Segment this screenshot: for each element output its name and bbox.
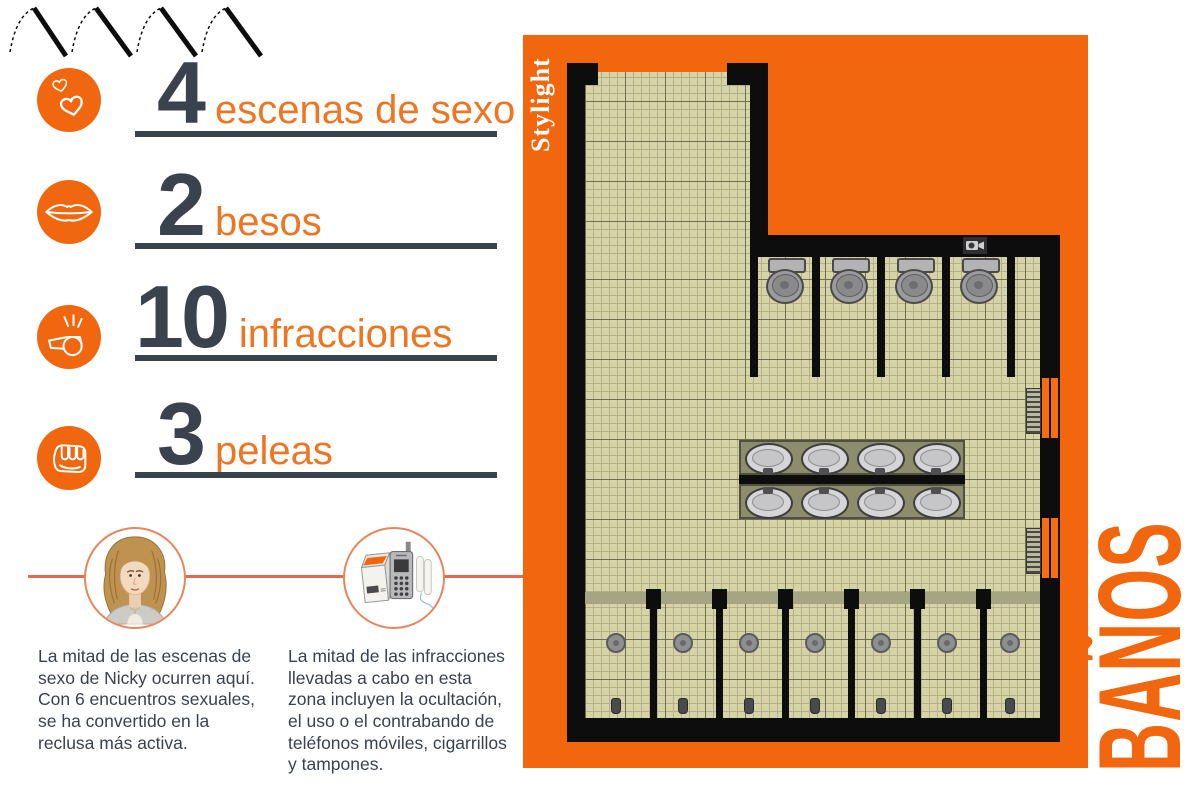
shower-drain: [606, 633, 626, 653]
shower-partition: [716, 600, 723, 718]
sink: [857, 487, 905, 519]
entrance-left-stub: [567, 63, 598, 85]
shower-head-icon: [611, 698, 621, 714]
shower-head-icon: [876, 698, 886, 714]
vent-grille: [1026, 388, 1041, 434]
sink: [913, 487, 961, 519]
shower-head-icon: [1005, 698, 1015, 714]
shower-partition: [980, 600, 987, 718]
shower-partition: [914, 600, 921, 718]
sink: [857, 443, 905, 475]
shower-head-icon: [942, 698, 952, 714]
bottom-wall: [567, 718, 1060, 742]
shower-drain: [871, 633, 891, 653]
stall-doors: [0, 0, 265, 60]
vent-grille: [1026, 528, 1041, 574]
sink: [801, 443, 849, 475]
corridor-right-wall: [750, 63, 768, 257]
toilet-stall-partition: [1007, 257, 1015, 377]
toilet: [895, 258, 933, 304]
shower-drain: [739, 633, 759, 653]
sink: [801, 487, 849, 519]
toilet-stall-partition: [750, 257, 758, 377]
shower-partition: [782, 600, 789, 718]
shower-drain: [805, 633, 825, 653]
sink: [913, 443, 961, 475]
toilet: [830, 258, 868, 304]
toilet-stall-partition: [812, 257, 820, 377]
entry-corridor-floor: [585, 72, 750, 262]
infographic-banos: 4escenas de sexo 2besos 10infracciones 3…: [0, 0, 1200, 800]
floor-plan: [0, 0, 1200, 800]
shower-head-icon: [678, 698, 688, 714]
radiator: [1040, 518, 1060, 578]
security-camera-icon: [963, 237, 987, 254]
toilet: [960, 258, 998, 304]
toilet-stall-partition: [877, 257, 885, 377]
right-wall-upper: [1040, 235, 1060, 380]
sink: [745, 443, 793, 475]
radiator: [1040, 378, 1060, 438]
shower-drain: [673, 633, 693, 653]
shower-drain: [937, 633, 957, 653]
toilet-stall-partition: [942, 257, 950, 377]
shower-partition: [848, 600, 855, 718]
sink-counter-divider: [739, 475, 965, 484]
shower-drain: [1000, 633, 1020, 653]
shower-head-icon: [810, 698, 820, 714]
shower-head-icon: [744, 698, 754, 714]
left-wall: [567, 63, 585, 742]
shower-partition: [650, 600, 657, 718]
sink: [745, 487, 793, 519]
toilet: [766, 258, 804, 304]
right-wall-middle: [1040, 438, 1060, 520]
toilet-top-wall: [750, 235, 1060, 257]
